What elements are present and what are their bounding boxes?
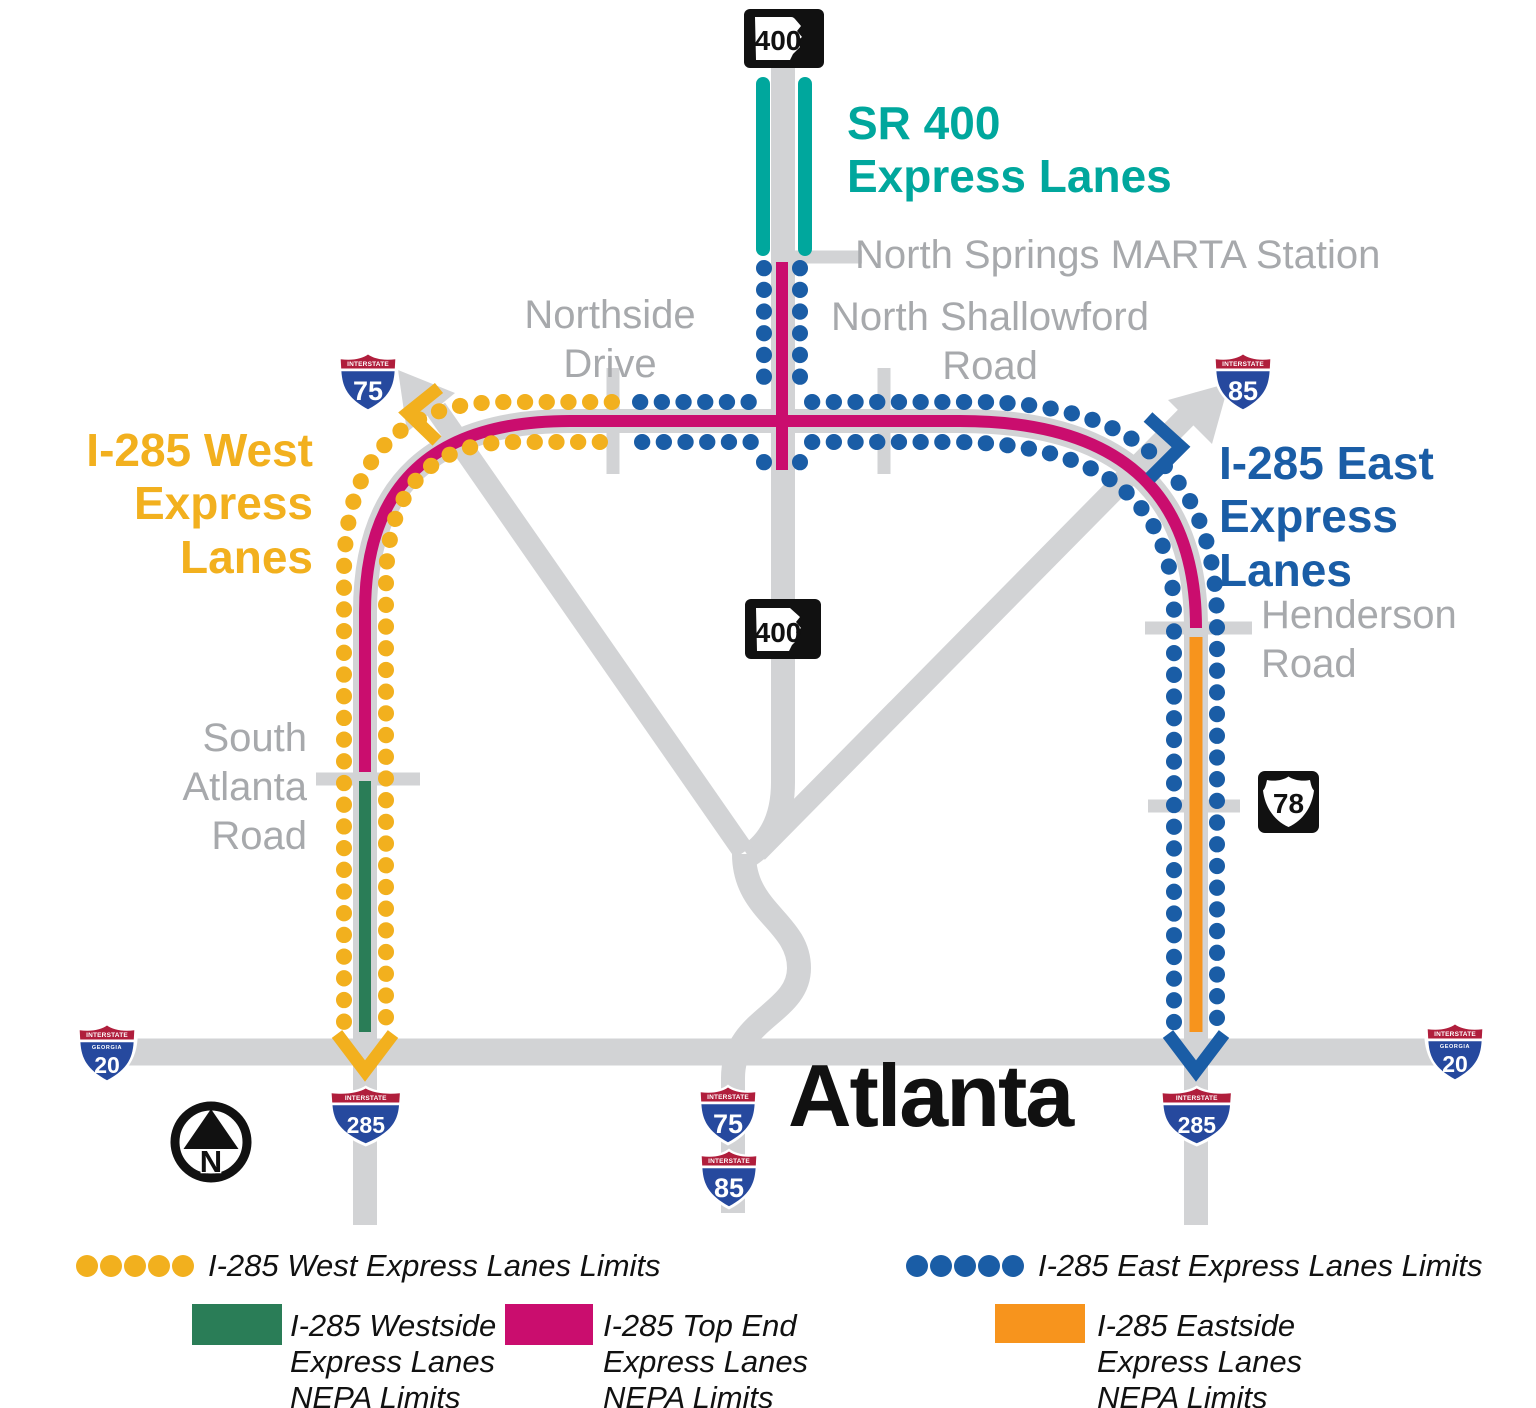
interstate-label: INTERSTATE — [1176, 1095, 1218, 1102]
interstate-label: INTERSTATE — [345, 1095, 387, 1102]
eastside-nepa-swatch — [995, 1304, 1085, 1343]
blue-dot-icon — [954, 1255, 976, 1277]
shield-number: 400 — [755, 25, 802, 56]
sr400-shield-mid: 400 — [745, 599, 821, 659]
interstate-label: INTERSTATE — [1434, 1031, 1476, 1038]
shield-number: 85 — [714, 1173, 744, 1203]
yellow-dot-icon — [124, 1255, 146, 1277]
express-lanes-map: 400 400 INTERSTATE 75 INTERSTA — [0, 0, 1536, 1408]
blue-dot-icon — [978, 1255, 1000, 1277]
east-limits-dots-inner — [642, 442, 1174, 1028]
north-springs-marta-label: North Springs MARTA Station — [855, 231, 1380, 280]
interstate-label: INTERSTATE — [1222, 361, 1264, 368]
interstate-label: INTERSTATE — [707, 1094, 749, 1101]
south-atlanta-road-label: South Atlanta Road — [90, 714, 307, 860]
yellow-dot-icon — [172, 1255, 194, 1277]
legend-west-limits-label: I-285 West Express Lanes Limits — [208, 1248, 661, 1284]
i285-shield-west: INTERSTATE 285 — [327, 1086, 404, 1147]
legend-east-limits-label: I-285 East Express Lanes Limits — [1038, 1248, 1483, 1284]
shield-number: 20 — [1442, 1051, 1468, 1077]
compass-north-label: N — [200, 1144, 222, 1179]
blue-dot-icon — [1002, 1255, 1024, 1277]
yellow-dot-icon — [148, 1255, 170, 1277]
map-canvas: 400 400 INTERSTATE 75 INTERSTA — [0, 0, 1536, 1408]
henderson-road-label: Henderson Road — [1261, 591, 1457, 689]
i85-shield-bottom: INTERSTATE 85 — [698, 1149, 759, 1210]
georgia-label: GEORGIA — [1440, 1044, 1470, 1050]
north-compass-icon: N — [175, 1106, 247, 1179]
sr400-shield-top: 400 — [744, 9, 824, 68]
northside-drive-label: Northside Drive — [455, 291, 765, 389]
i20-shield-left: INTERSTATE GEORGIA 20 — [76, 1023, 137, 1084]
interstate-label: INTERSTATE — [708, 1158, 750, 1165]
shield-number: 400 — [755, 617, 802, 648]
i20-shield-right: INTERSTATE GEORGIA 20 — [1424, 1022, 1485, 1083]
yellow-dot-icon — [100, 1255, 122, 1277]
shield-number: 78 — [1273, 788, 1304, 819]
legend-east-limits: I-285 East Express Lanes Limits — [906, 1248, 1483, 1284]
north-shallowford-label: North Shallowford Road — [830, 293, 1150, 391]
i75-diagonal-road — [436, 409, 744, 852]
atlanta-city-label: Atlanta — [788, 1052, 1072, 1140]
yellow-dot-icon — [76, 1255, 98, 1277]
interstate-label: INTERSTATE — [347, 361, 389, 368]
georgia-label: GEORGIA — [92, 1045, 122, 1051]
westside-nepa-label: I-285 Westside Express Lanes NEPA Limits — [290, 1308, 496, 1408]
shield-number: 85 — [1228, 376, 1258, 406]
sr400-express-lanes-label: SR 400 Express Lanes — [847, 97, 1172, 204]
i285-west-express-lanes-label: I-285 West Express Lanes — [0, 424, 313, 584]
shield-number: 75 — [353, 376, 383, 406]
legend-west-limits: I-285 West Express Lanes Limits — [76, 1248, 661, 1284]
i285-east-express-lanes-label: I-285 East Express Lanes — [1219, 437, 1536, 597]
top-end-nepa-label: I-285 Top End Express Lanes NEPA Limits — [603, 1308, 808, 1408]
i75-shield-top: INTERSTATE 75 — [337, 352, 398, 413]
shield-number: 20 — [94, 1052, 120, 1078]
shield-number: 285 — [347, 1112, 386, 1138]
i285-shield-east: INTERSTATE 285 — [1158, 1086, 1235, 1147]
shield-number: 285 — [1178, 1112, 1217, 1138]
west-limits-dots-inner — [386, 442, 600, 1028]
blue-dot-icon — [906, 1255, 928, 1277]
interstate-label: INTERSTATE — [86, 1032, 128, 1039]
westside-nepa-swatch — [192, 1304, 282, 1345]
i75-shield-bottom: INTERSTATE 75 — [697, 1085, 758, 1146]
shield-number: 75 — [713, 1109, 743, 1139]
top-end-nepa-swatch — [505, 1304, 593, 1345]
eastside-nepa-label: I-285 Eastside Express Lanes NEPA Limits — [1097, 1308, 1302, 1408]
us78-shield: 78 — [1258, 771, 1319, 833]
blue-dot-icon — [930, 1255, 952, 1277]
